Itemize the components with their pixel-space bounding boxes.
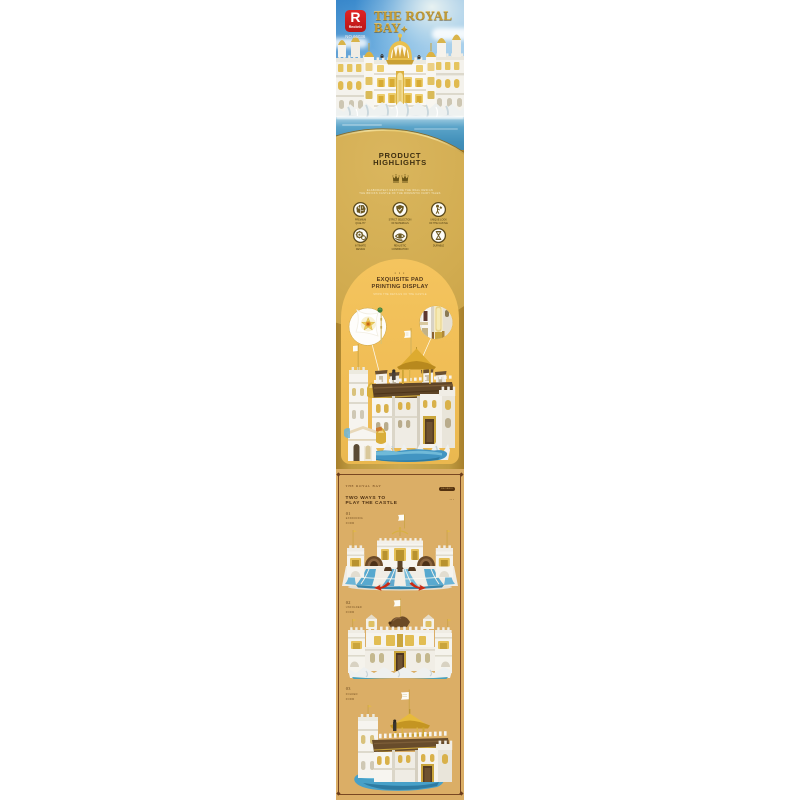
svg-text:OF THE CASTLE: OF THE CASTLE [429,222,448,225]
svg-text:QUALITY: QUALITY [355,222,366,225]
svg-text:OF MATERIALS: OF MATERIALS [391,222,409,225]
svg-text:DESIGN: DESIGN [356,248,365,251]
svg-text:COMBINATION: COMBINATION [392,248,409,251]
svg-text:DURABLE: DURABLE [433,245,445,248]
